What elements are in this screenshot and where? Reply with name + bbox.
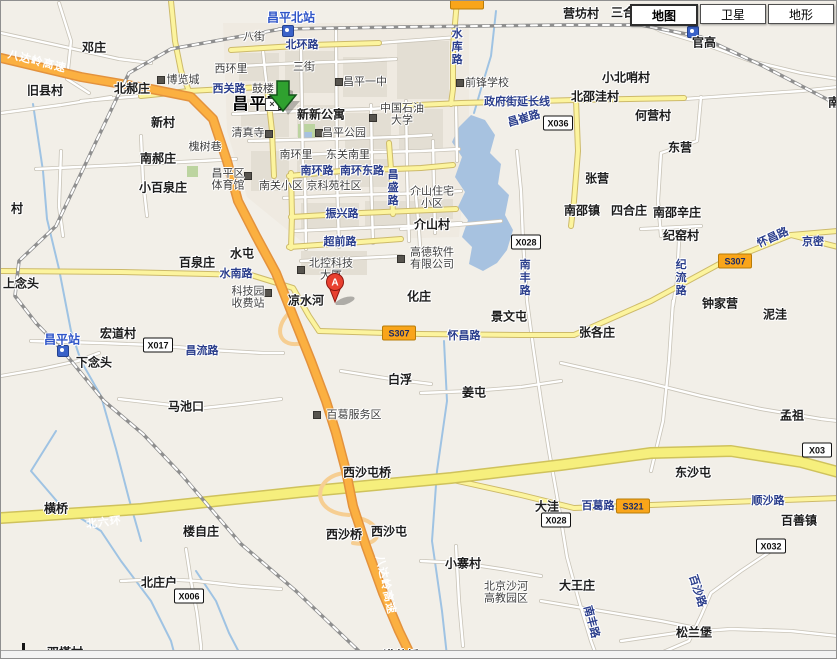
bottom-strip [1,650,837,659]
map-canvas[interactable] [1,1,837,659]
map-type-control: 地图 卫星 地形 [630,4,834,26]
destination-arrow-marker[interactable] [261,77,307,124]
map-app: 昌平区邓庄旧县村北郝庄营坊村三合官高小北哨村北邵洼村何营村东营张营新村南郝庄小百… [0,0,837,659]
location-pin-a[interactable]: A [321,271,361,310]
park-area [187,166,198,177]
city-block [397,41,449,99]
city-block [345,113,391,149]
pin-letter: A [331,278,338,289]
map-type-button-satellite[interactable]: 卫星 [700,4,766,24]
map-type-button-terrain[interactable]: 地形 [768,4,834,24]
map-type-button-map[interactable]: 地图 [630,4,698,26]
